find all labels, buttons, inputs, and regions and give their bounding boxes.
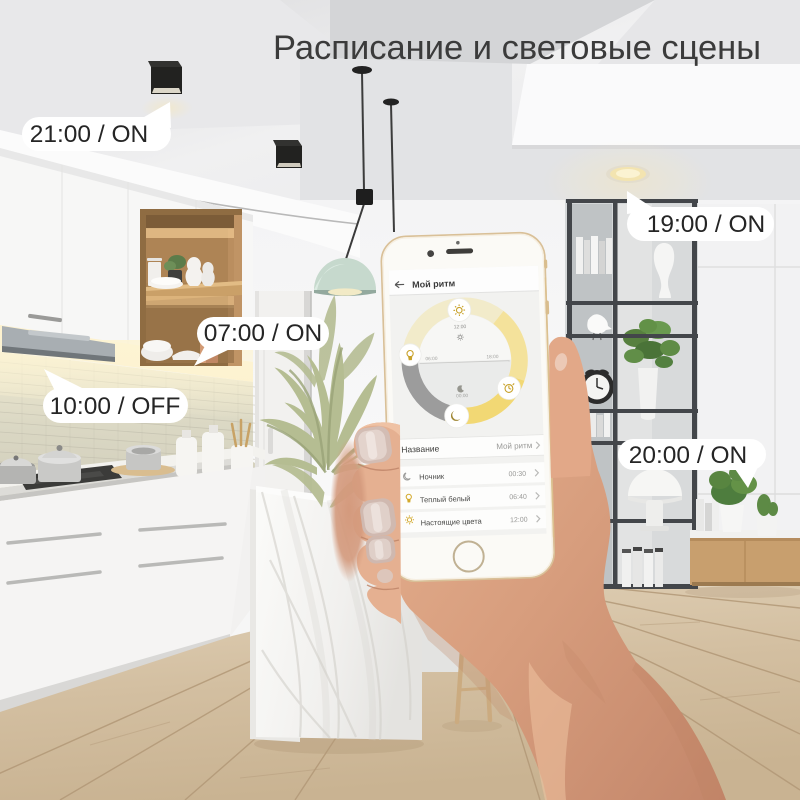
svg-text:06:40: 06:40 xyxy=(509,494,527,502)
svg-text:07:00 / ON: 07:00 / ON xyxy=(204,320,322,347)
svg-text:06:00: 06:00 xyxy=(425,356,438,362)
svg-text:Мой ритм: Мой ритм xyxy=(412,278,456,289)
svg-text:10:00 / OFF: 10:00 / OFF xyxy=(50,393,181,420)
svg-text:Название: Название xyxy=(401,443,440,454)
svg-text:20:00 / ON: 20:00 / ON xyxy=(629,442,747,469)
svg-text:Расписание и световые сцены: Расписание и световые сцены xyxy=(273,29,761,67)
svg-text:00:00: 00:00 xyxy=(456,393,469,399)
svg-text:Теплый белый: Теплый белый xyxy=(420,494,471,505)
svg-text:21:00 / ON: 21:00 / ON xyxy=(30,121,148,148)
svg-text:00:30: 00:30 xyxy=(509,471,527,479)
svg-text:12:00: 12:00 xyxy=(510,517,528,525)
svg-text:Ночник: Ночник xyxy=(419,472,445,482)
svg-text:19:00 / ON: 19:00 / ON xyxy=(647,211,765,238)
svg-text:18:00: 18:00 xyxy=(486,354,499,360)
svg-text:12:00: 12:00 xyxy=(454,324,467,330)
svg-text:Мой ритм: Мой ритм xyxy=(496,441,532,451)
